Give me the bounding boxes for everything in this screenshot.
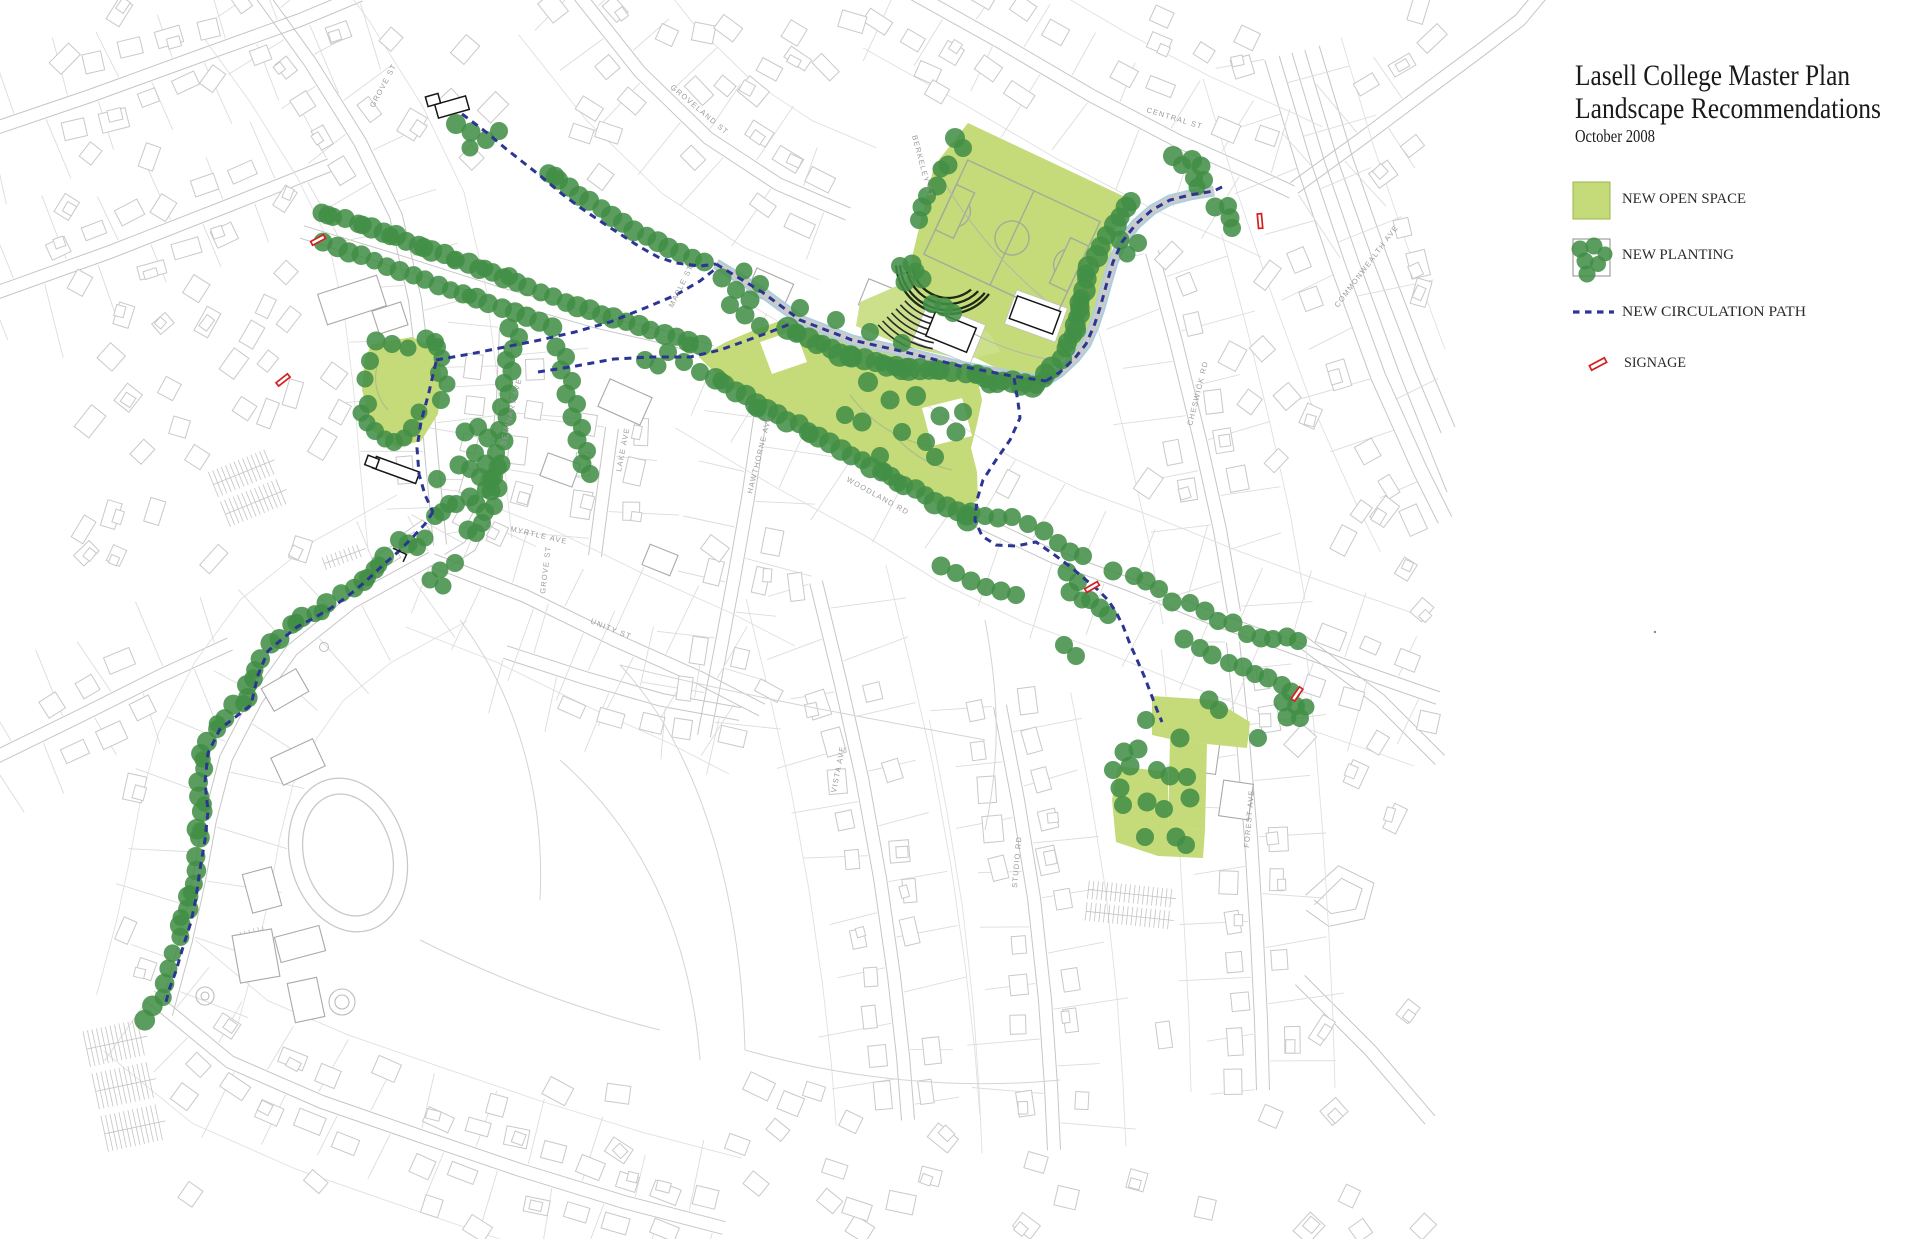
- svg-text:NEW OPEN SPACE: NEW OPEN SPACE: [1622, 191, 1746, 207]
- svg-text:Landscape Recommendations: Landscape Recommendations: [1575, 92, 1881, 125]
- svg-text:NEW PLANTING: NEW PLANTING: [1622, 247, 1734, 263]
- svg-text:SIGNAGE: SIGNAGE: [1624, 355, 1686, 371]
- svg-text:NEW CIRCULATION PATH: NEW CIRCULATION PATH: [1622, 304, 1806, 320]
- svg-text:October 2008: October 2008: [1575, 126, 1655, 146]
- svg-text:Lasell College Master Plan: Lasell College Master Plan: [1575, 59, 1850, 92]
